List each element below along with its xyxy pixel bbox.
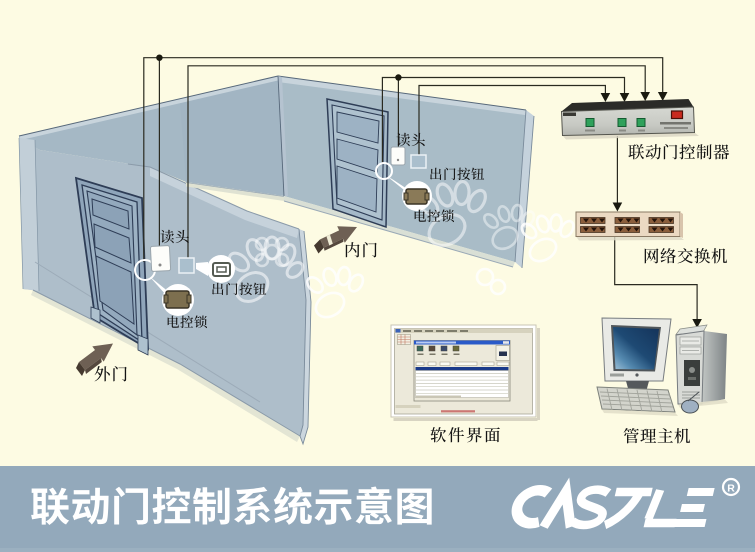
svg-text:R: R bbox=[727, 483, 735, 495]
